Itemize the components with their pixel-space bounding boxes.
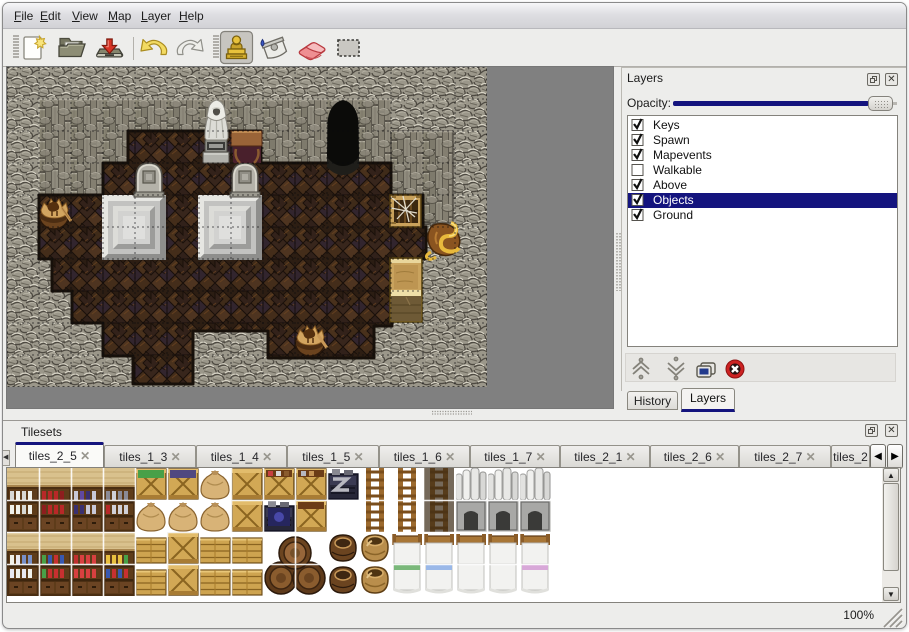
svg-text:Walkable: Walkable <box>653 163 702 177</box>
svg-text:Mapevents: Mapevents <box>653 148 712 162</box>
svg-text:Ground: Ground <box>653 208 693 222</box>
svg-text:Objects: Objects <box>653 193 694 207</box>
svg-text:Keys: Keys <box>653 118 680 132</box>
svg-text:Spawn: Spawn <box>653 133 690 147</box>
svg-text:Above: Above <box>653 178 687 192</box>
